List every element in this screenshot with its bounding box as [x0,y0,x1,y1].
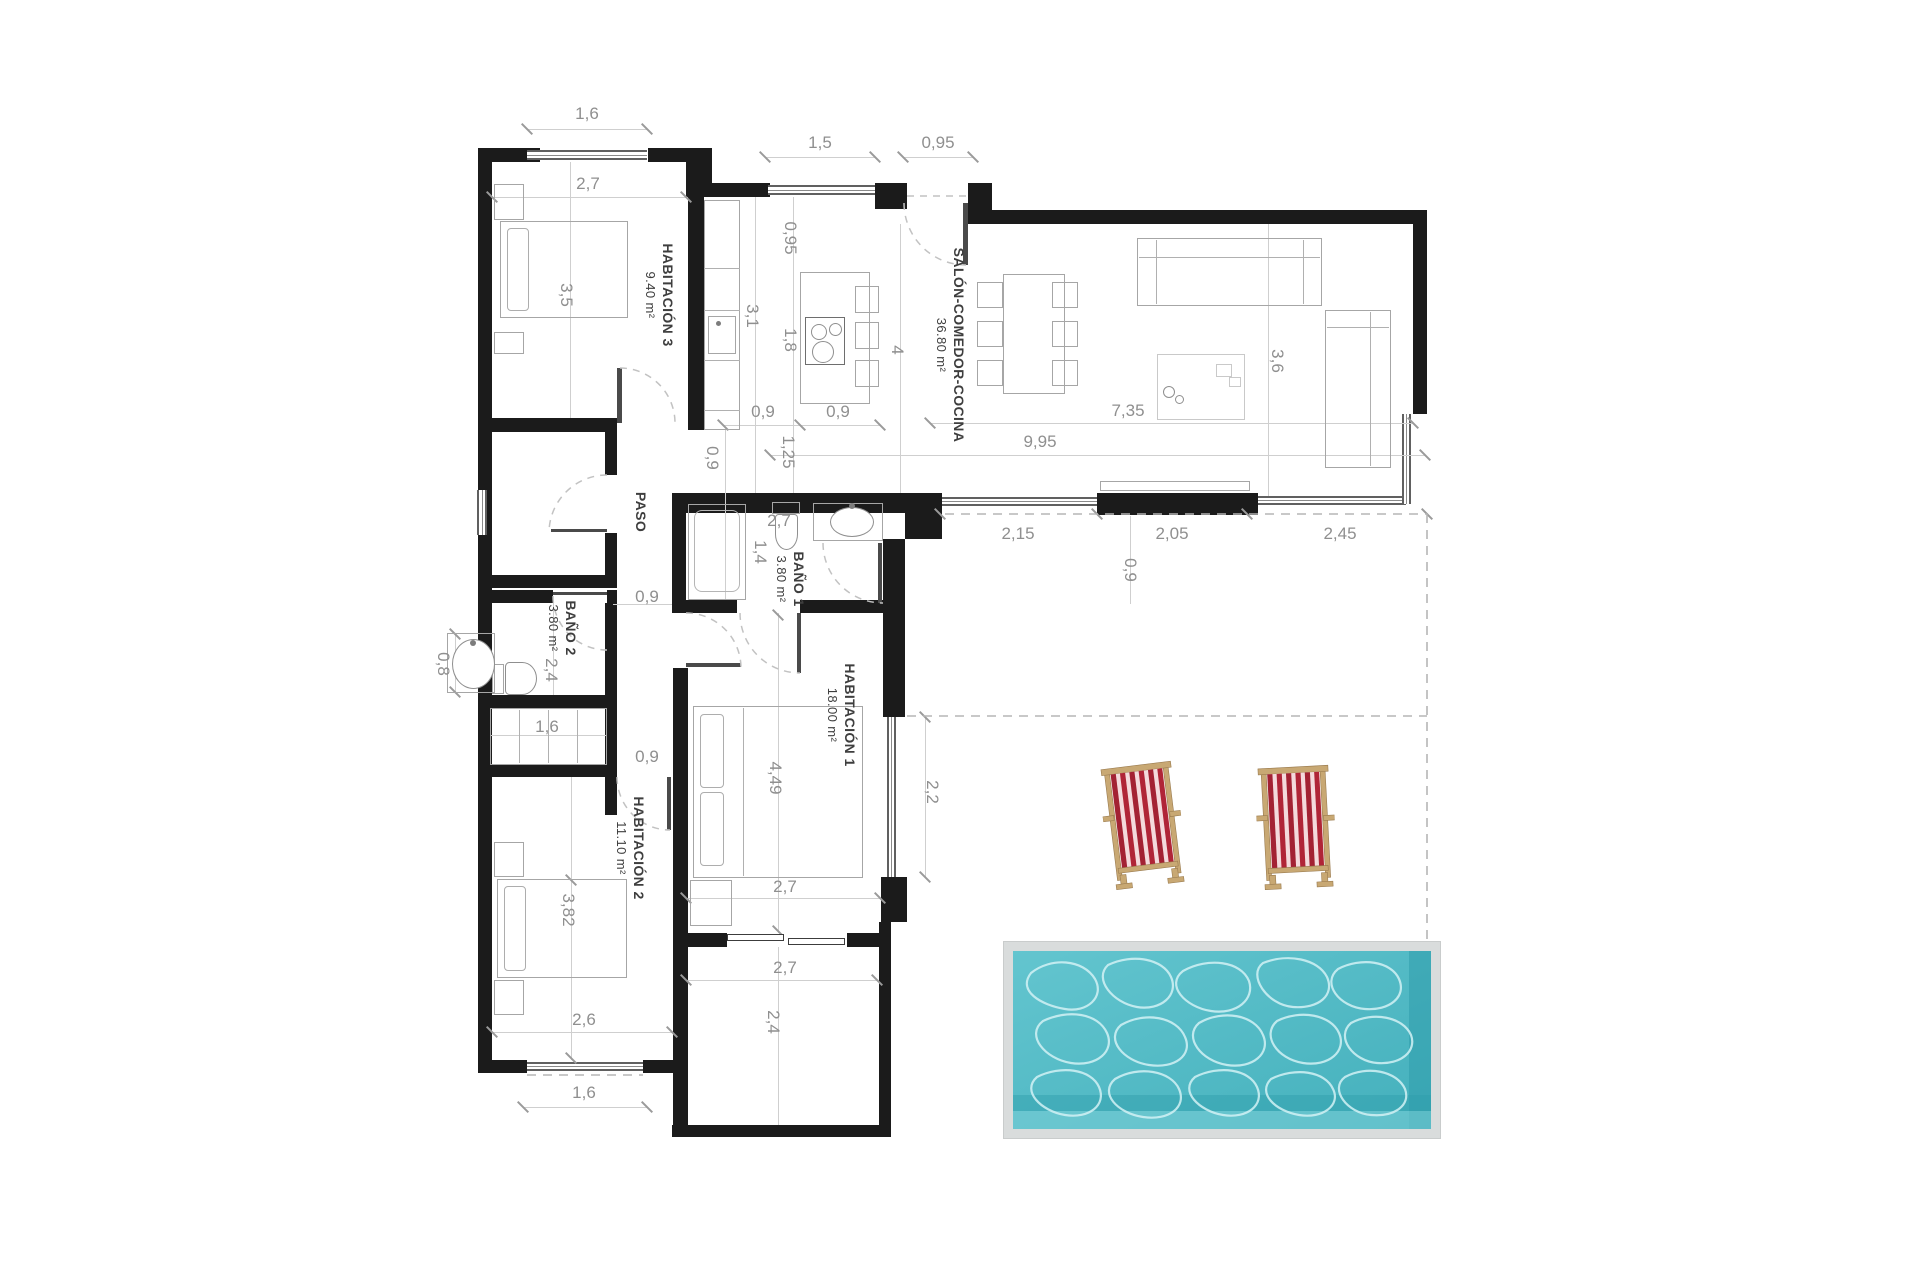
dim-label: 3,6 [1267,349,1287,373]
dim-label: 3,82 [558,893,578,926]
dim-label: 2,4 [763,1010,783,1034]
door-arcs-layer [0,0,1920,1280]
room-name: BAÑO 1 [789,551,807,606]
room-area: 11.10 m² [613,796,629,899]
salon-hab1-door-arc [823,543,883,603]
room-name: HABITACIÓN 2 [629,796,647,899]
dim-label: 1,4 [750,540,770,564]
dim-label: 0,9 [702,446,722,470]
room-label-bano-2: BAÑO 2 3.80 m² [545,600,579,655]
hab3-door-arc [620,368,675,423]
room-area: 9.40 m² [642,243,658,346]
hab1-door-arc [686,613,741,668]
room-label-salon: SALÓN-COMEDOR-COCINA 36.80 m² [933,248,967,443]
room-label-habitacion-2: HABITACIÓN 2 11.10 m² [613,796,647,899]
dim-label: 3,5 [556,283,576,307]
dim-label: 2,4 [541,658,561,682]
dim-label: 0,8 [433,652,453,676]
floor-plan: 1,6 2,7 3,5 1,5 0,95 0,95 3,1 1,8 4 0,9 … [0,0,1920,1280]
swimming-pool [1004,942,1440,1138]
dim-label: 2,45 [1323,524,1356,544]
dim-label: 2,6 [572,1010,596,1030]
dim-label: 0,95 [921,133,954,153]
dim-label: 2,15 [1001,524,1034,544]
dim-label: 9,95 [1023,432,1056,452]
dim-label: 2,05 [1155,524,1188,544]
dim-label: 0,9 [635,587,659,607]
room-area: 36.80 m² [933,248,949,443]
dim-label: 3,1 [742,304,762,328]
dim-label: 1,25 [778,435,798,468]
dim-label: 0,9 [826,402,850,422]
room-label-bano-1: BAÑO 1 3.80 m² [773,551,807,606]
dim-label: 2,7 [576,174,600,194]
dim-label: 1,6 [575,104,599,124]
room-name: HABITACIÓN 1 [840,663,858,766]
pool-water [1013,951,1431,1129]
dim-label: 1,5 [808,133,832,153]
dim-label: 0,9 [635,747,659,767]
dim-label: 1,8 [780,328,800,352]
room-name: BAÑO 2 [561,600,579,655]
dim-label: 2,7 [773,958,797,978]
deck-chair [1097,758,1190,893]
room-label-habitacion-1: HABITACIÓN 1 18.00 m² [824,663,858,766]
dim-label: 2,7 [773,877,797,897]
dim-label: 7,35 [1111,401,1144,421]
dim-label: 4 [887,345,907,354]
storage-door-arc [549,475,607,533]
dim-label: 1,6 [572,1083,596,1103]
dim-label: 2,2 [922,780,942,804]
room-label-habitacion-3: HABITACIÓN 3 9.40 m² [642,243,676,346]
room-area: 18.00 m² [824,663,840,766]
bano1-door-arc [740,613,800,673]
room-name: HABITACIÓN 3 [658,243,676,346]
dim-label: 0,95 [780,221,800,254]
dim-label: 0,9 [751,402,775,422]
room-area: 3.80 m² [773,551,789,606]
dim-label: 0,9 [1120,558,1140,582]
room-name: SALÓN-COMEDOR-COCINA [949,248,967,443]
deck-chair [1254,762,1338,892]
dim-label: 1,6 [535,717,559,737]
room-area: 3.80 m² [545,600,561,655]
room-label-paso: PASO [631,492,649,532]
room-name: PASO [631,492,649,532]
dim-label: 4,49 [765,761,785,794]
dim-label: 2,7 [767,511,791,531]
